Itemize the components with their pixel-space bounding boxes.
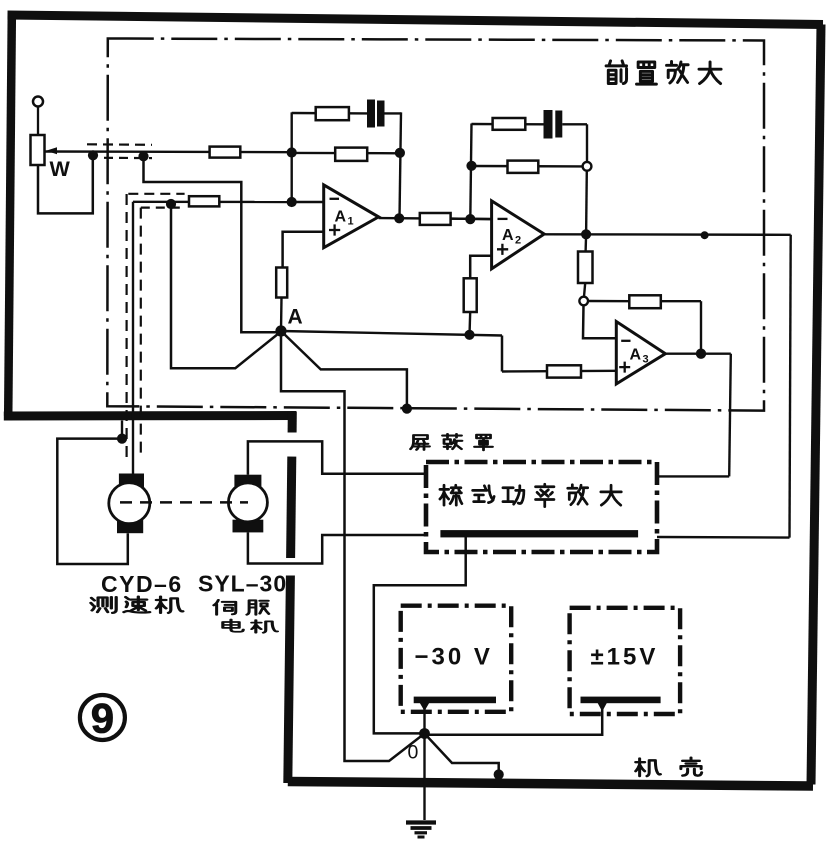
svg-text:3: 3 [643,354,649,366]
svg-text:1: 1 [348,216,354,228]
svg-text:A: A [288,306,303,329]
svg-text:SYL–30: SYL–30 [198,571,287,597]
svg-text:W: W [50,157,71,181]
svg-text:A: A [630,347,642,364]
svg-text:2: 2 [515,235,521,247]
svg-text:9: 9 [91,695,114,742]
svg-text:CYD–6: CYD–6 [101,571,183,597]
svg-text:−30 V: −30 V [415,644,493,671]
svg-text:0: 0 [408,742,419,764]
svg-text:±15V: ±15V [591,644,659,671]
svg-text:A: A [502,227,514,244]
svg-text:A: A [335,209,347,226]
